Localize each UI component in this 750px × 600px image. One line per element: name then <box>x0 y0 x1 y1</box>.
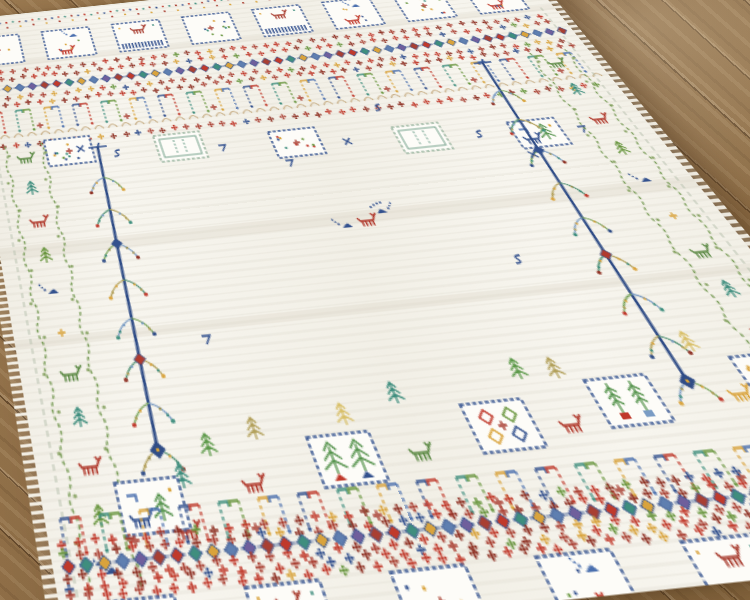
perspective-wrapper <box>0 0 750 538</box>
rug-pattern <box>0 0 750 600</box>
rug-photo: Hand-woven cream gabbeh wool rug with tr… <box>0 0 750 600</box>
gabbeh-rug <box>0 0 750 600</box>
rug-scene <box>0 0 569 517</box>
